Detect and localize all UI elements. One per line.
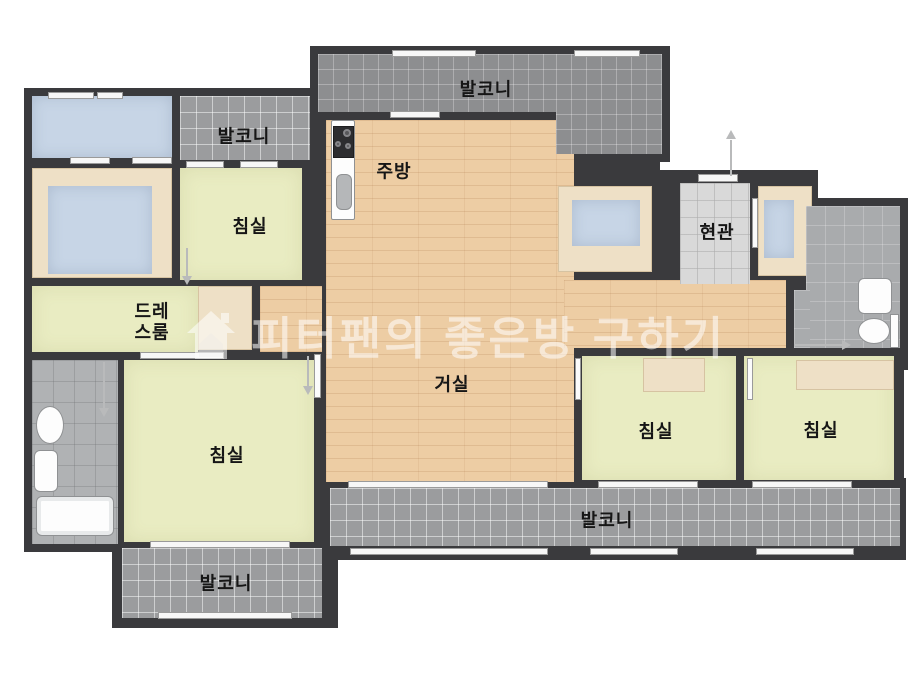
window bbox=[348, 481, 548, 488]
window bbox=[150, 541, 290, 548]
window bbox=[392, 50, 476, 57]
toilet-icon bbox=[36, 406, 64, 444]
room-label-living: 거실 bbox=[434, 375, 469, 396]
door-leaf bbox=[575, 358, 581, 400]
window bbox=[240, 161, 278, 168]
closet bbox=[198, 286, 252, 350]
window bbox=[574, 50, 640, 57]
floor-plan: 발코니 발코니 주방 현관 침실 드레 스룸 거실 침실 침실 침실 발코니 발… bbox=[0, 0, 923, 676]
room-label-entrance: 현관 bbox=[699, 223, 734, 244]
room-label-kitchen: 주방 bbox=[376, 162, 411, 183]
window bbox=[70, 157, 110, 164]
room-label-balcony-bottom: 발코니 bbox=[581, 511, 634, 532]
toilet-2-icon bbox=[858, 318, 890, 344]
window bbox=[158, 612, 292, 619]
bathtub-icon bbox=[36, 496, 114, 536]
room-label-balcony-top-left: 발코니 bbox=[218, 127, 271, 148]
dress-room-line2: 스룸 bbox=[134, 322, 169, 343]
window bbox=[350, 548, 548, 555]
room-label-balcony-bottom-left: 발코니 bbox=[200, 574, 253, 595]
sliding-door bbox=[140, 352, 224, 359]
kitchen-living-floor bbox=[326, 120, 574, 482]
dress-room-floor bbox=[32, 286, 198, 352]
room-label-bedroom-top-left: 침실 bbox=[232, 217, 267, 238]
window bbox=[390, 111, 440, 118]
wash-basin-2-icon bbox=[858, 278, 892, 314]
window bbox=[756, 548, 854, 555]
utility-room-floor bbox=[32, 96, 172, 158]
room-label-bedroom-bottom-left: 침실 bbox=[209, 446, 244, 467]
bath-right-door-arrow bbox=[794, 344, 844, 346]
window bbox=[752, 481, 852, 488]
door-leaf bbox=[314, 354, 321, 398]
window bbox=[48, 92, 94, 99]
toilet-2-tank bbox=[890, 314, 899, 348]
bath-right-door-arrow-head bbox=[842, 340, 851, 350]
bed-2-icon bbox=[796, 360, 894, 390]
room-label-bedroom-right-1: 침실 bbox=[638, 422, 673, 443]
kitchen-sink-icon bbox=[336, 174, 352, 210]
balcony-top-floor-ext bbox=[556, 54, 662, 154]
bedroom1-door-arrow-head bbox=[182, 276, 192, 285]
shoe-closet-floor bbox=[764, 200, 794, 258]
door-leaf bbox=[752, 198, 758, 248]
bath-left-door-arrow bbox=[103, 362, 105, 410]
room-label-dress-room: 드레 스룸 bbox=[134, 301, 169, 342]
room-label-bedroom-right-2: 침실 bbox=[803, 421, 838, 442]
entrance-arrow bbox=[730, 140, 732, 176]
window bbox=[97, 92, 123, 99]
room-label-balcony-top: 발코니 bbox=[460, 80, 513, 101]
bedroom2-door-arrow bbox=[307, 356, 309, 388]
bed-icon bbox=[643, 358, 705, 392]
bedroom1-door-arrow bbox=[186, 248, 188, 278]
dress-room-line1: 드레 bbox=[134, 301, 169, 322]
powder-room-floor bbox=[48, 186, 152, 274]
wash-basin-icon bbox=[34, 450, 58, 492]
window bbox=[132, 157, 172, 164]
window bbox=[590, 548, 678, 555]
entrance-arrow-head bbox=[726, 130, 736, 139]
hall-alcove-floor bbox=[260, 286, 322, 352]
window bbox=[186, 161, 224, 168]
bathroom-right-floor-ext bbox=[794, 290, 810, 348]
pantry-left-floor bbox=[572, 200, 640, 246]
window bbox=[598, 481, 698, 488]
bedroom2-door-arrow-head bbox=[303, 386, 313, 395]
corridor-floor bbox=[564, 280, 786, 348]
door-leaf bbox=[747, 358, 753, 400]
stove-icon bbox=[333, 126, 354, 158]
bath-left-door-arrow-head bbox=[99, 408, 109, 417]
entrance-door-sill bbox=[698, 174, 738, 182]
